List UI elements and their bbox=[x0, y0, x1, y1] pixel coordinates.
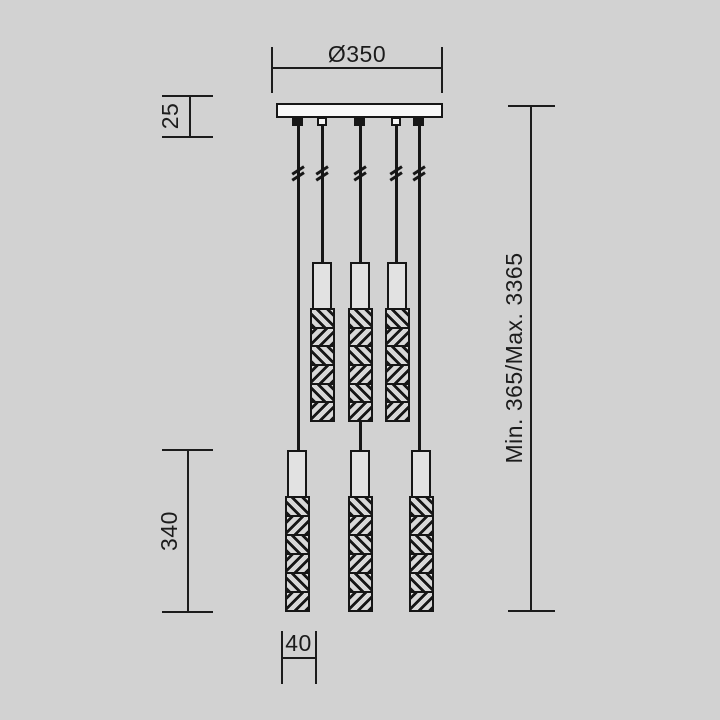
canopy-plate bbox=[276, 103, 443, 118]
crystal-hatch-band bbox=[312, 329, 333, 348]
dim-diameter-extension-left bbox=[271, 47, 273, 93]
crystal-hatch-band bbox=[312, 403, 333, 420]
dim-diameter-extension-right bbox=[441, 47, 443, 93]
pendant-upper-middle-tube bbox=[350, 262, 370, 310]
crystal-hatch-band bbox=[350, 574, 371, 593]
pendant-lower-middle-shade bbox=[348, 496, 373, 612]
pendant-lower-right-tube bbox=[411, 450, 431, 498]
crystal-hatch-band bbox=[350, 593, 371, 610]
crystal-hatch-band bbox=[287, 593, 308, 610]
dim-suspension-height-label: Min. 365/Max. 3365 bbox=[502, 243, 526, 473]
cable-gland-open-2 bbox=[391, 117, 401, 126]
crystal-hatch-band bbox=[387, 347, 408, 366]
pendant-lower-left-tube bbox=[287, 450, 307, 498]
crystal-hatch-band bbox=[387, 366, 408, 385]
dim-canopy-line bbox=[189, 95, 191, 137]
crystal-hatch-band bbox=[387, 329, 408, 348]
crystal-hatch-band bbox=[350, 366, 371, 385]
crystal-hatch-band bbox=[312, 366, 333, 385]
crystal-hatch-band bbox=[350, 310, 371, 329]
dim-shade-length-label: 340 bbox=[157, 491, 181, 571]
crystal-hatch-band bbox=[350, 517, 371, 536]
pendant-lower-left-shade bbox=[285, 496, 310, 612]
pendant-lower-right-shade bbox=[409, 496, 434, 612]
pendant-upper-left-tube bbox=[312, 262, 332, 310]
crystal-hatch-band bbox=[350, 498, 371, 517]
crystal-hatch-band bbox=[287, 536, 308, 555]
crystal-hatch-band bbox=[350, 536, 371, 555]
dim-canopy-height-label: 25 bbox=[158, 86, 182, 146]
pendant-upper-right-shade bbox=[385, 308, 410, 422]
crystal-hatch-band bbox=[387, 310, 408, 329]
crystal-hatch-band bbox=[387, 403, 408, 420]
crystal-hatch-band bbox=[411, 498, 432, 517]
crystal-hatch-band bbox=[287, 555, 308, 574]
pendant-upper-middle-shade bbox=[348, 308, 373, 422]
crystal-hatch-band bbox=[312, 310, 333, 329]
crystal-hatch-band bbox=[287, 517, 308, 536]
cable-gland-open-1 bbox=[317, 117, 327, 126]
crystal-hatch-band bbox=[387, 385, 408, 404]
crystal-hatch-band bbox=[287, 498, 308, 517]
pendant-upper-right-tube bbox=[387, 262, 407, 310]
crystal-hatch-band bbox=[350, 403, 371, 420]
crystal-hatch-band bbox=[287, 574, 308, 593]
suspension-cable-3 bbox=[359, 126, 362, 262]
cable-gland-filled-3 bbox=[413, 117, 424, 126]
crystal-hatch-band bbox=[411, 593, 432, 610]
technical-drawing-canvas: Ø350 25 340 40 bbox=[0, 0, 720, 720]
crystal-hatch-band bbox=[411, 517, 432, 536]
crystal-hatch-band bbox=[312, 385, 333, 404]
suspension-cable-4 bbox=[395, 126, 398, 262]
dim-width-line bbox=[281, 657, 316, 659]
pendant-upper-left-shade bbox=[310, 308, 335, 422]
dim-diameter-label: Ø350 bbox=[307, 42, 407, 66]
crystal-hatch-band bbox=[312, 347, 333, 366]
crystal-hatch-band bbox=[350, 555, 371, 574]
crystal-hatch-band bbox=[411, 536, 432, 555]
dim-shade-width-label: 40 bbox=[283, 631, 314, 655]
crystal-hatch-band bbox=[411, 555, 432, 574]
crystal-hatch-band bbox=[350, 385, 371, 404]
dim-height-line bbox=[530, 105, 532, 611]
crystal-hatch-band bbox=[350, 347, 371, 366]
crystal-hatch-band bbox=[411, 574, 432, 593]
pendant-lower-middle-tube bbox=[350, 450, 370, 498]
suspension-cable-middle-lower bbox=[359, 420, 362, 451]
cable-gland-filled-2 bbox=[354, 117, 365, 126]
dim-shade-line bbox=[187, 449, 189, 612]
cable-gland-filled-1 bbox=[292, 117, 303, 126]
suspension-cable-2 bbox=[321, 126, 324, 262]
crystal-hatch-band bbox=[350, 329, 371, 348]
